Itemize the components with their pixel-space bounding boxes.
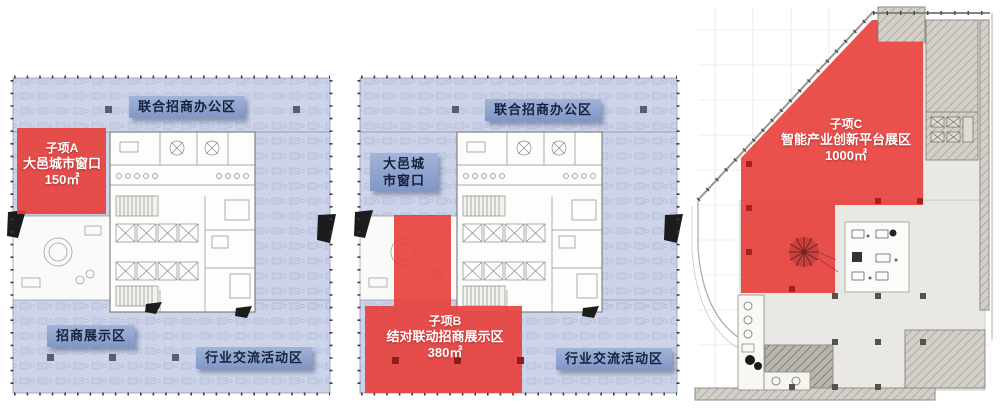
highlight-b-desc: 结对联动招商展示区 xyxy=(367,329,523,345)
floor-plan-panel-b: 子项B 结对联动招商展示区 380㎡ 联合招商办公区 大邑城市窗口 行业交流活动… xyxy=(345,0,690,417)
highlight-b-caption: 子项B 结对联动招商展示区 380㎡ xyxy=(367,314,523,361)
floor-plan-c-drawing xyxy=(690,0,1000,417)
highlight-a-name: 子项A xyxy=(14,141,110,156)
highlight-c-name: 子项C xyxy=(762,117,930,132)
zone-label-office-b: 联合招商办公区 xyxy=(485,99,601,121)
floor-plan-panel-c: 子项C 智能产业创新平台展区 1000㎡ xyxy=(690,0,1000,417)
highlight-a-caption: 子项A 大邑城市窗口 150㎡ xyxy=(14,141,110,188)
highlight-b-name: 子项B xyxy=(367,314,523,329)
zone-label-city-window-b: 大邑城市窗口 xyxy=(370,153,438,191)
zone-label-expo-a: 招商展示区 xyxy=(47,325,135,347)
highlight-c-desc: 智能产业创新平台展区 xyxy=(762,132,930,148)
zone-label-office-a: 联合招商办公区 xyxy=(129,96,245,118)
floor-plan-panel-a: 子项A 大邑城市窗口 150㎡ 联合招商办公区 招商展示区 行业交流活动区 xyxy=(0,0,340,417)
highlight-a-area: 150㎡ xyxy=(14,172,110,188)
highlight-b-area: 380㎡ xyxy=(367,345,523,361)
slide-floor-plans: 子项A 大邑城市窗口 150㎡ 联合招商办公区 招商展示区 行业交流活动区 xyxy=(0,0,1000,417)
zone-label-exchange-a: 行业交流活动区 xyxy=(196,347,312,369)
highlight-a-desc: 大邑城市窗口 xyxy=(14,156,110,172)
zone-label-exchange-b: 行业交流活动区 xyxy=(556,348,672,370)
highlight-c-area: 1000㎡ xyxy=(762,148,930,164)
highlight-c-caption: 子项C 智能产业创新平台展区 1000㎡ xyxy=(762,117,930,164)
exhibit-module xyxy=(845,222,909,292)
